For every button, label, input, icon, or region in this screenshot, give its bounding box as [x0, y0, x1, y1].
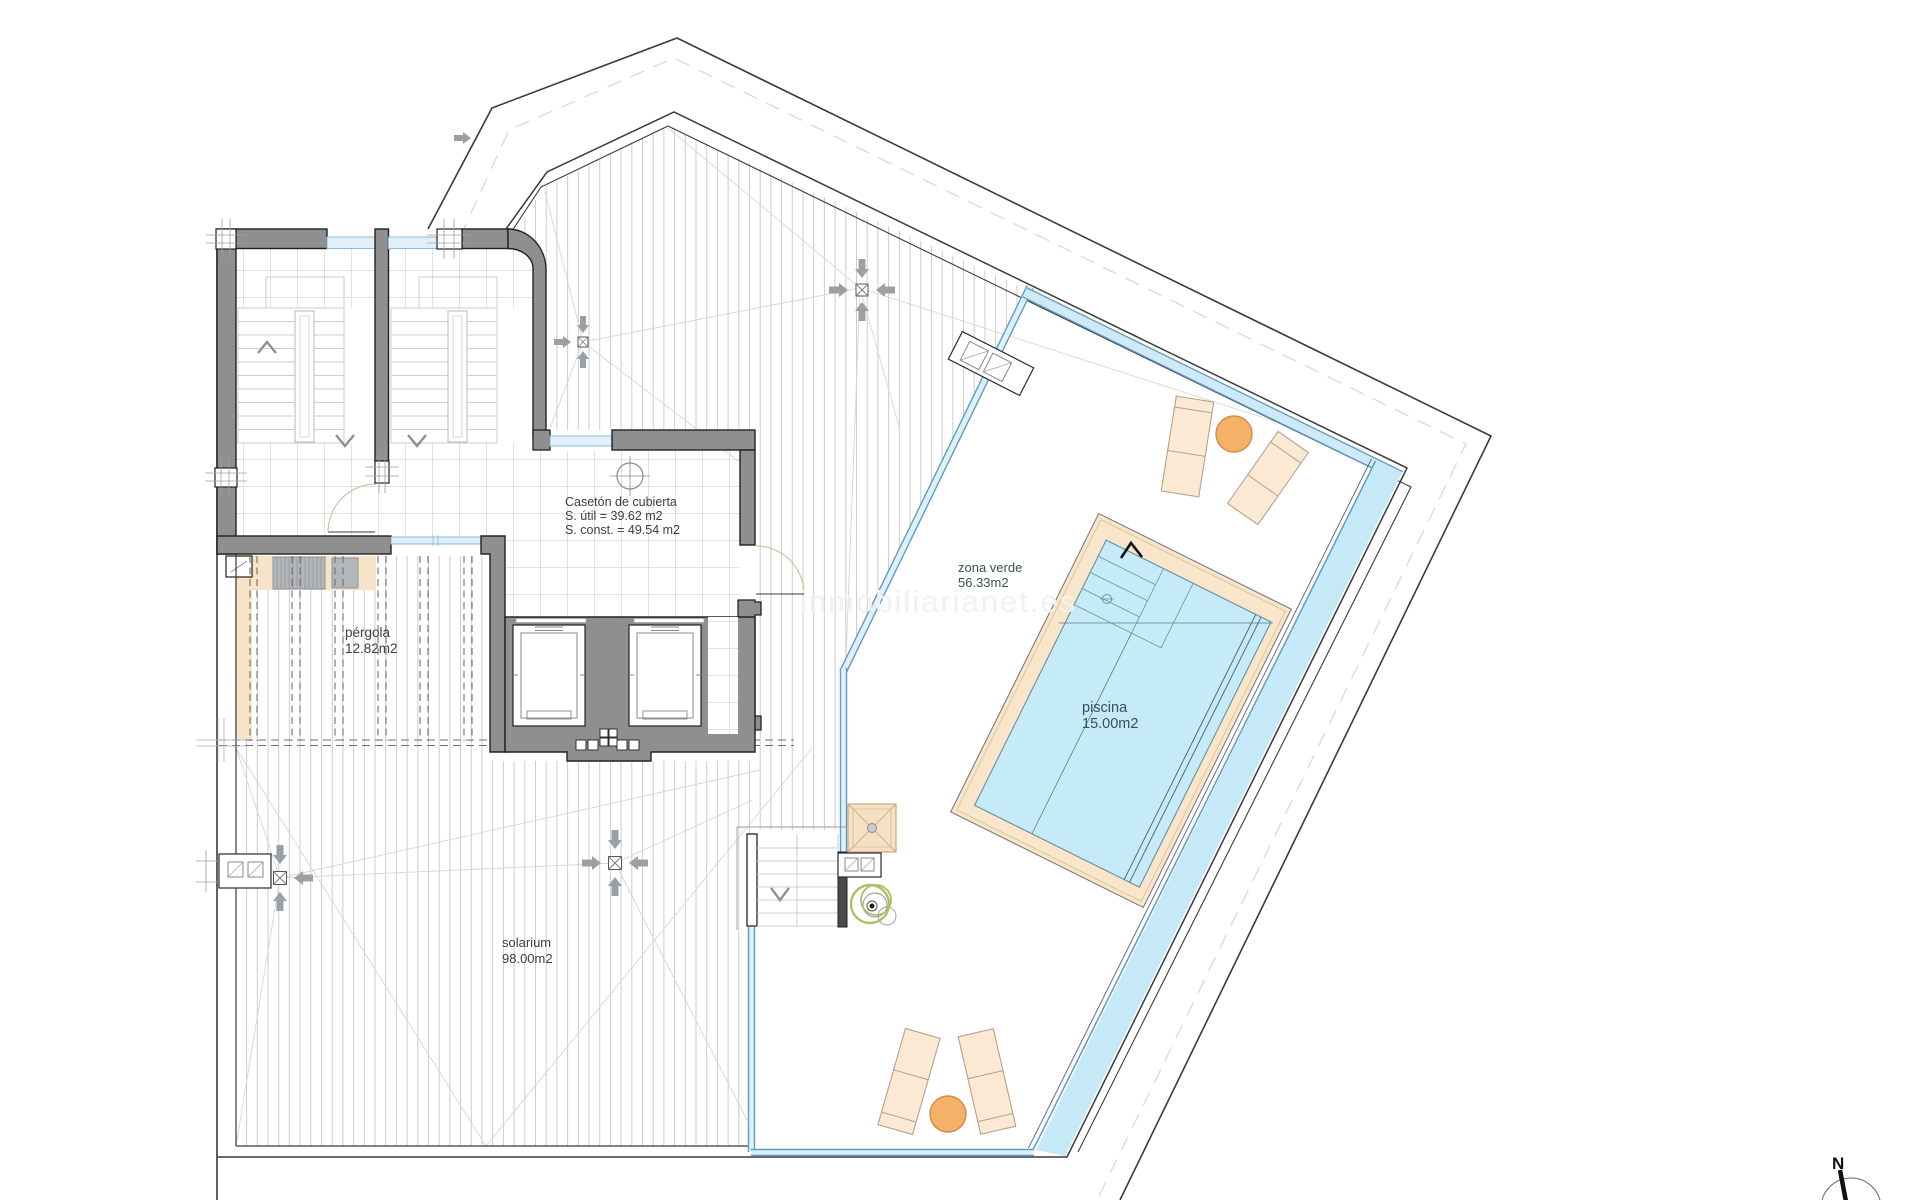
svg-text:12.82m2: 12.82m2	[345, 641, 398, 656]
svg-text:solarium: solarium	[502, 935, 551, 950]
svg-text:pérgola: pérgola	[345, 625, 391, 640]
svg-text:Casetón de cubierta: Casetón de cubierta	[565, 495, 677, 509]
svg-text:zona verde: zona verde	[958, 560, 1022, 575]
svg-text:98.00m2: 98.00m2	[502, 951, 553, 966]
svg-text:N: N	[1832, 1154, 1844, 1173]
svg-text:15.00m2: 15.00m2	[1082, 716, 1138, 732]
svg-text:S. útil = 39.62 m2: S. útil = 39.62 m2	[565, 509, 663, 523]
svg-text:piscina: piscina	[1082, 700, 1128, 716]
svg-text:inmobiliarianet.es: inmobiliarianet.es	[800, 584, 1077, 619]
svg-text:S. const. = 49.54 m2: S. const. = 49.54 m2	[565, 523, 680, 537]
